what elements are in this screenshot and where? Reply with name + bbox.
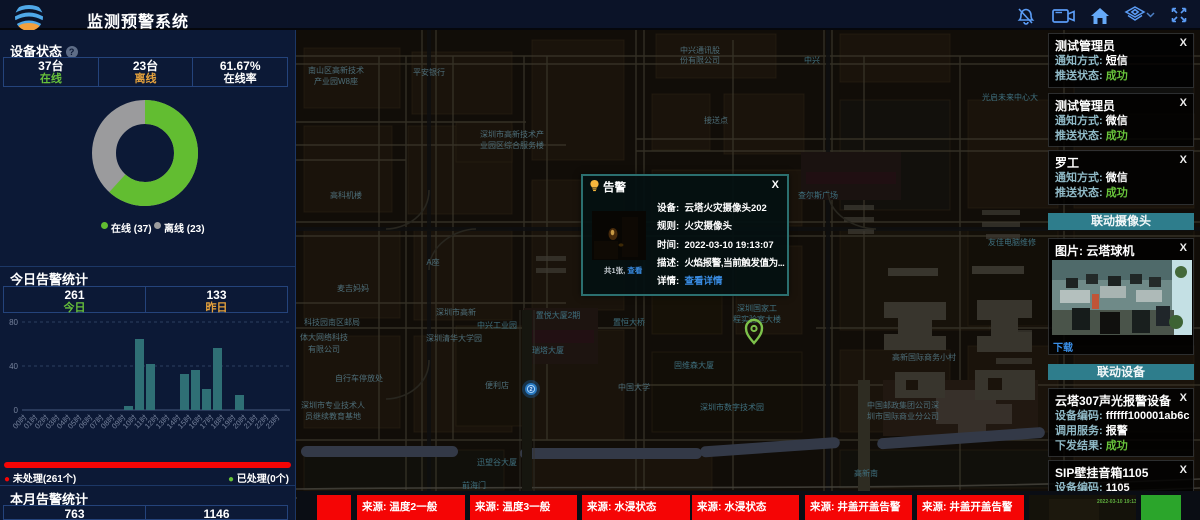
svg-text:中国大学: 中国大学 xyxy=(618,382,650,392)
svg-text:产业园W8座: 产业园W8座 xyxy=(314,76,358,86)
svg-text:2022-03-10 19:13: 2022-03-10 19:13 xyxy=(1097,499,1136,505)
svg-text:中兴: 中兴 xyxy=(804,55,820,65)
svg-text:置悦大厦2期: 置悦大厦2期 xyxy=(536,310,580,320)
svg-text:深圳国家工: 深圳国家工 xyxy=(737,303,777,313)
svg-text:平安银行: 平安银行 xyxy=(413,67,445,77)
svg-text:体大网络科技: 体大网络科技 xyxy=(300,332,348,342)
svg-text:瑞塔大厦: 瑞塔大厦 xyxy=(532,345,564,355)
svg-text:程实验室大楼: 程实验室大楼 xyxy=(733,314,781,324)
svg-text:自行车停放处: 自行车停放处 xyxy=(335,373,383,383)
svg-text:业园区综合服务楼: 业园区综合服务楼 xyxy=(480,140,544,150)
svg-text:固维森大厦: 固维森大厦 xyxy=(674,360,714,370)
svg-text:中兴工业园: 中兴工业园 xyxy=(477,320,517,330)
svg-text:有限公司: 有限公司 xyxy=(308,344,340,354)
svg-text:中兴通讯股: 中兴通讯股 xyxy=(680,45,720,55)
svg-text:深圳清华大学园: 深圳清华大学园 xyxy=(426,333,482,343)
svg-text:接送点: 接送点 xyxy=(704,115,728,125)
svg-text:2: 2 xyxy=(529,387,532,393)
svg-text:友佳电脑维修: 友佳电脑维修 xyxy=(988,237,1036,247)
svg-text:深圳市专业技术人: 深圳市专业技术人 xyxy=(301,400,365,410)
svg-text:南山区高新技术: 南山区高新技术 xyxy=(308,65,364,75)
svg-text:前海门: 前海门 xyxy=(462,480,486,490)
svg-text:深圳市高新: 深圳市高新 xyxy=(436,307,476,317)
svg-text:高新南: 高新南 xyxy=(854,468,878,478)
svg-text:科技园南区邮局: 科技园南区邮局 xyxy=(304,317,360,327)
svg-text:40: 40 xyxy=(9,362,18,371)
svg-text:置恒大桥: 置恒大桥 xyxy=(613,317,645,327)
svg-text:A座: A座 xyxy=(426,257,439,267)
svg-text:迅望谷大厦: 迅望谷大厦 xyxy=(477,457,517,467)
svg-text:23时: 23时 xyxy=(263,412,282,431)
svg-text:圳市国际商业分公司: 圳市国际商业分公司 xyxy=(867,411,939,421)
svg-text:深圳市数字技术园: 深圳市数字技术园 xyxy=(700,402,764,412)
svg-text:查尔斯广场: 查尔斯广场 xyxy=(798,190,838,200)
svg-text:便利店: 便利店 xyxy=(485,380,509,390)
svg-text:员继续教育基地: 员继续教育基地 xyxy=(305,411,361,421)
svg-text:80: 80 xyxy=(9,318,18,327)
svg-text:高科机楼: 高科机楼 xyxy=(330,190,362,200)
svg-text:高新国际商务小村: 高新国际商务小村 xyxy=(892,352,956,362)
svg-text:麦吉妈妈: 麦吉妈妈 xyxy=(337,283,369,293)
svg-text:中国邮政集团公司深: 中国邮政集团公司深 xyxy=(867,400,939,410)
svg-text:光启未来中心大: 光启未来中心大 xyxy=(982,92,1038,102)
svg-text:份有限公司: 份有限公司 xyxy=(680,55,720,65)
svg-text:深圳市高新技术产: 深圳市高新技术产 xyxy=(480,129,544,139)
